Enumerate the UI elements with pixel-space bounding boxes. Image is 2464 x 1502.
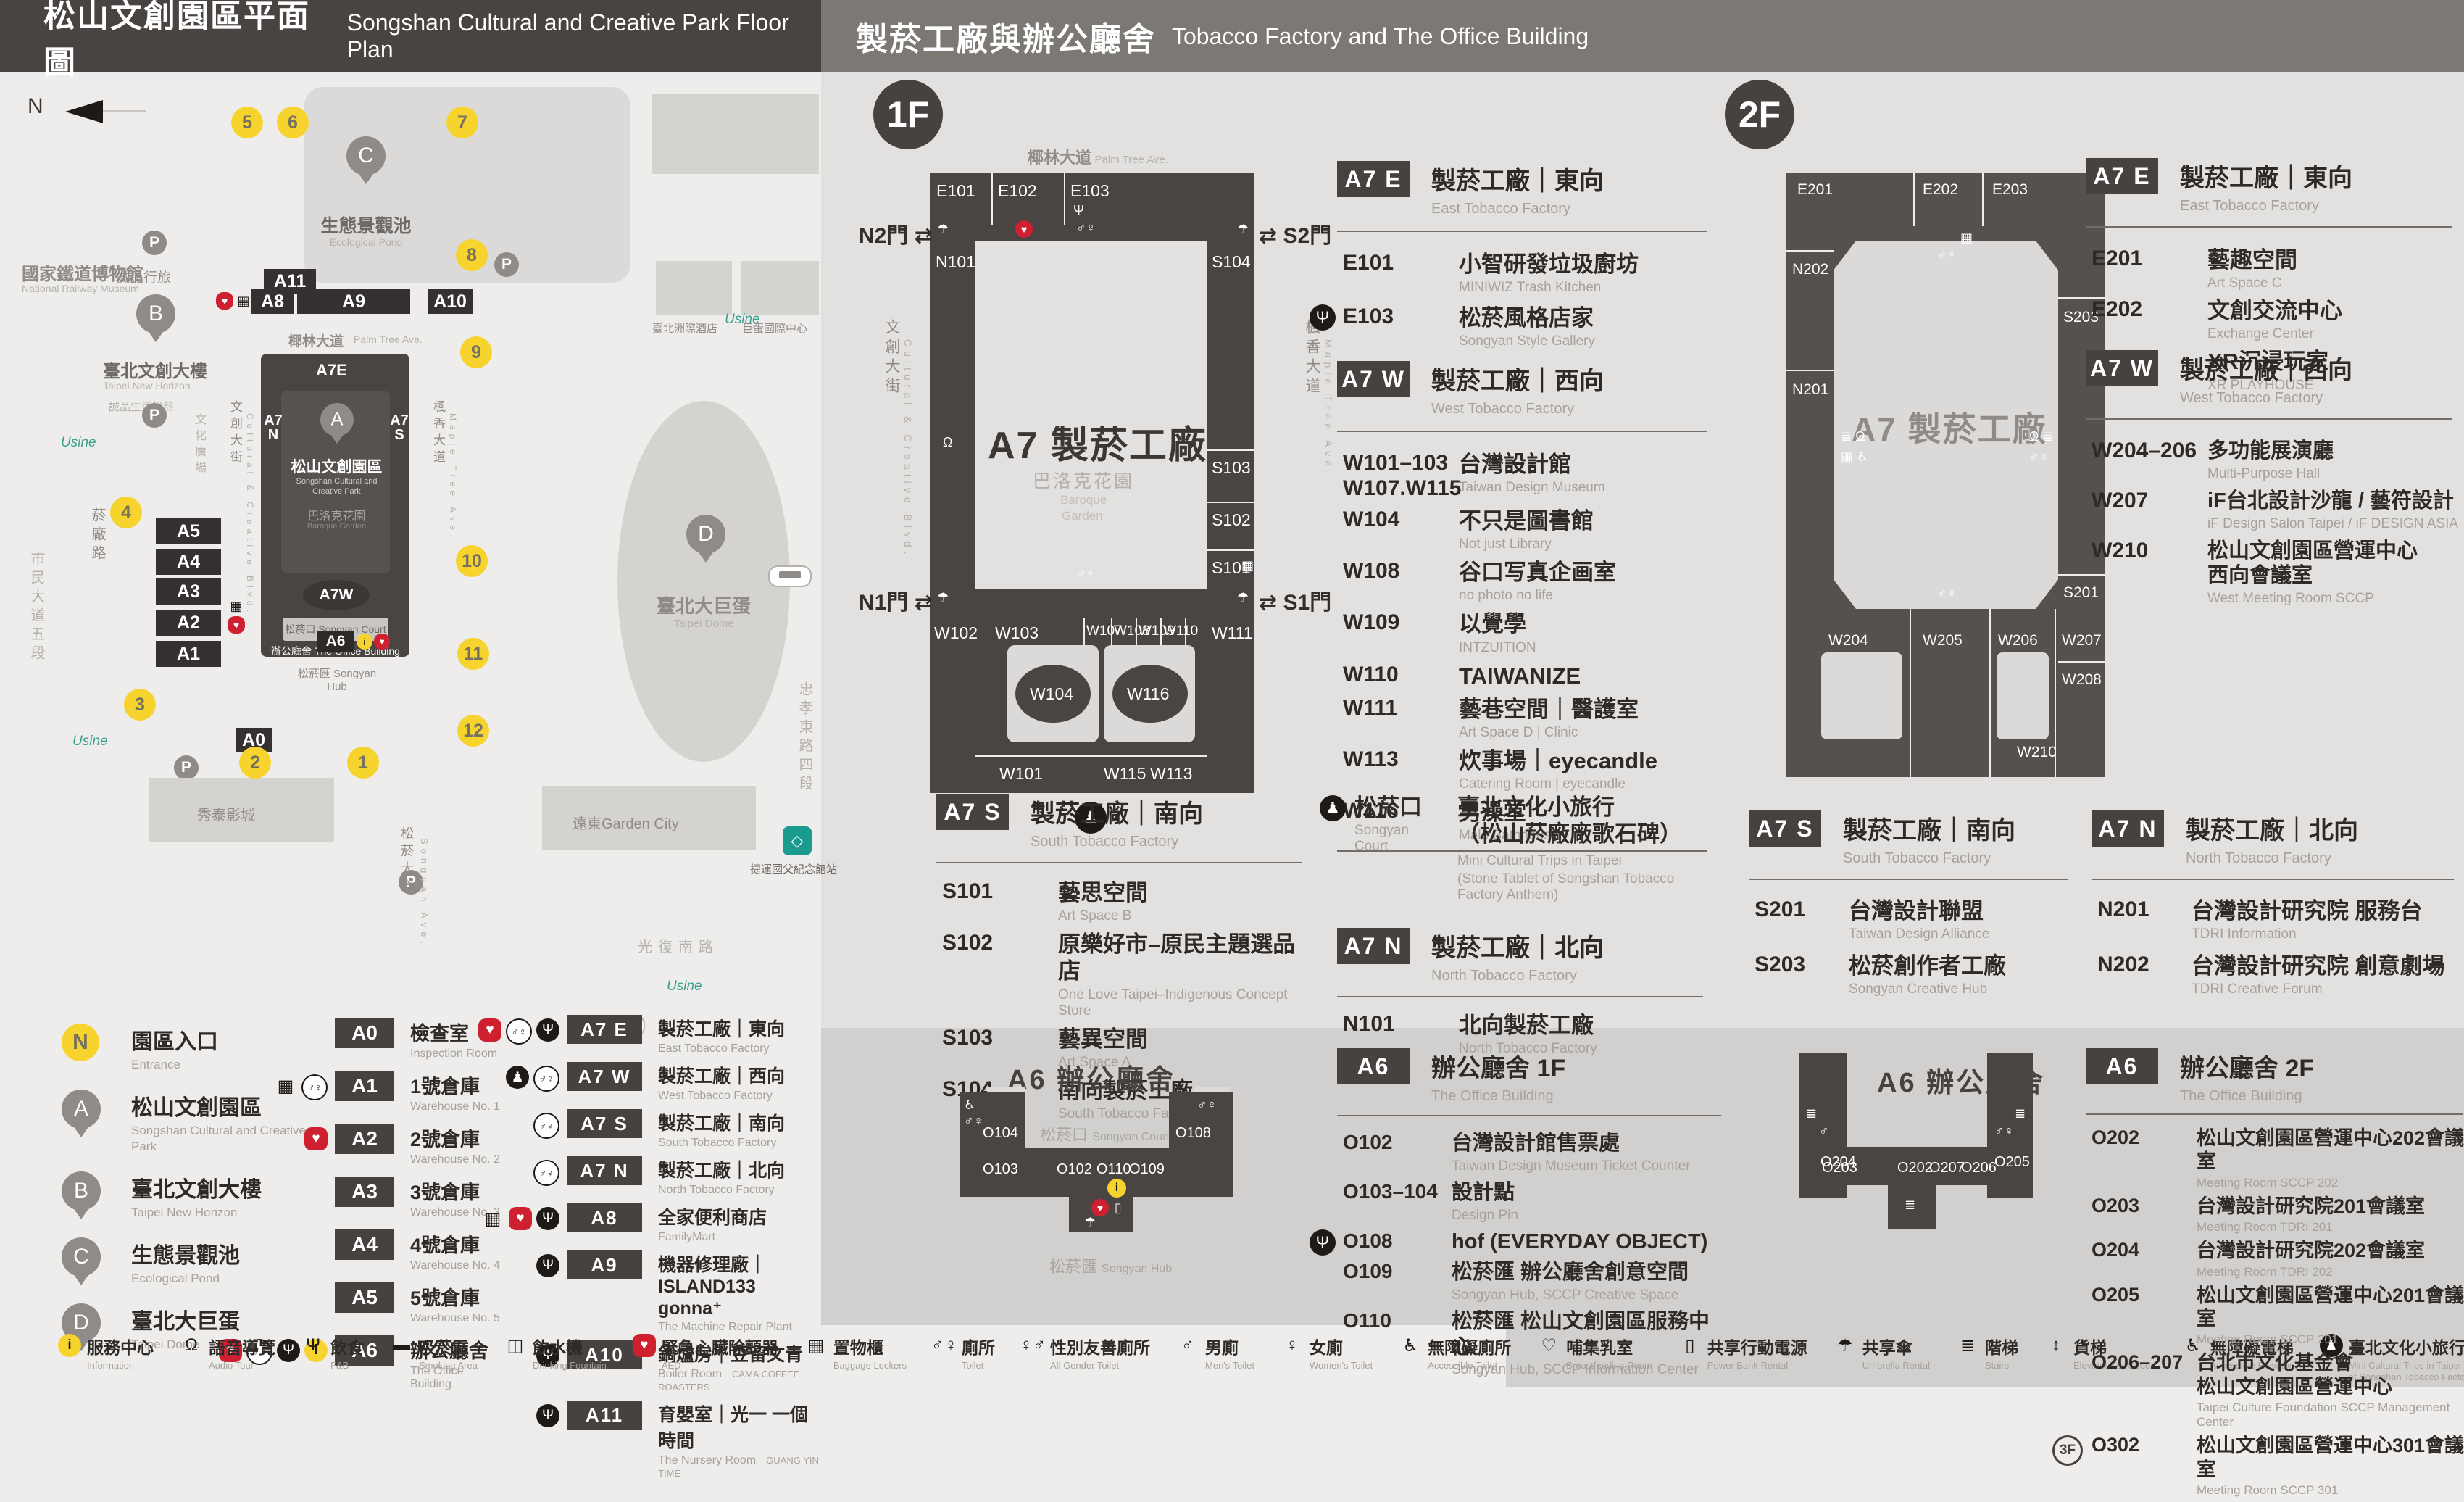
floor2-a7w-section: A7 W 製菸工廠｜西向 West Tobacco Factory W204–2… <box>2086 350 2463 613</box>
room-w204: W204 <box>1828 632 1868 650</box>
ic-blk-icon: Ψ <box>536 1207 559 1230</box>
a7s-label: A7S <box>390 413 409 443</box>
marker-icon: C <box>62 1237 112 1277</box>
block-a5: A5 <box>156 518 221 544</box>
room-w103: W103 <box>995 623 1039 643</box>
pond-label-en: Ecological Pond <box>301 236 431 248</box>
room-w101: W101 <box>999 764 1043 784</box>
facility-icon: ♂♀ <box>933 1334 956 1357</box>
dome-pin: D <box>686 515 725 554</box>
block-a3: A3 <box>156 578 221 605</box>
hub-label: 松菸匯 Songyan Hub <box>290 665 384 693</box>
page-title-en: Songshan Cultural and Creative Park Floo… <box>347 9 821 63</box>
lockers-icon: ▦ <box>1960 231 1973 246</box>
aed-icon: ♥ <box>1015 220 1033 238</box>
marker-icon: N <box>62 1024 112 1061</box>
legend-code: A7 W <box>567 1062 642 1091</box>
yanchang-rd-label: 菸廠路 <box>87 507 108 564</box>
accessible-icon: ♿ <box>964 1098 975 1113</box>
cultural-blvd-label: 文創大街 <box>226 400 244 467</box>
facility-icon: Ω <box>180 1334 203 1357</box>
aed-icon: ♥ <box>1091 1199 1109 1216</box>
zhongxiao-rd-label: 忠孝東路四段 <box>794 681 815 794</box>
marker-b-icon: B <box>62 1171 101 1211</box>
facility-icon: ≣ <box>1956 1334 1979 1357</box>
a6-map-title: A6 辦公廳舍 <box>1007 1057 1175 1097</box>
legend-row: ♥♂♀Ψ A7 E 製菸工廠｜東向 East Tobacco Factory <box>478 1015 819 1055</box>
dome-center-block <box>741 261 819 315</box>
room-o202: O202 <box>1897 1160 1933 1177</box>
cultural-blvd: 文創大街 <box>881 319 902 397</box>
toilet-icon: ♂♀ <box>1937 248 1957 263</box>
pond-label: 生態景觀池 <box>301 212 431 238</box>
new-horizon-pin: B <box>136 294 175 333</box>
section-code: A7 N <box>1337 928 1410 964</box>
new-horizon-label-en: Taipei New Horizon <box>103 380 191 391</box>
room-o207: O207 <box>1929 1160 1965 1177</box>
marker-icon: B <box>62 1171 112 1211</box>
legend-code: A7 N <box>567 1156 642 1185</box>
marker-icon: A <box>62 1090 112 1129</box>
parking-icon: P <box>494 252 519 277</box>
legend-row: ♟♂♀ A7 W 製菸工廠｜西向 West Tobacco Factory <box>478 1062 819 1103</box>
room-s104: S104 <box>1212 252 1251 272</box>
legend-icons: ♂♀ <box>478 1156 559 1186</box>
entrance-4: 4 <box>110 497 142 528</box>
facility-icon: ☂ <box>1834 1334 1857 1357</box>
ic-plain-icon: ▦ <box>481 1207 504 1230</box>
showtime-label: 秀泰影城 <box>197 803 255 824</box>
block-a8: A8 <box>251 289 294 314</box>
dome-label-en: Taipei Dome <box>631 618 776 630</box>
intercontinental-label: 臺北洲際酒店 <box>652 320 717 336</box>
facility-item: ♂♀ 廁所 Toilet <box>933 1334 995 1372</box>
audio-icon: Ω <box>943 435 952 450</box>
section-code: A6 <box>2086 1048 2158 1084</box>
room-n201: N201 <box>1792 381 1828 399</box>
facility-icon: ◫ <box>504 1334 527 1357</box>
pin-b: B <box>136 294 175 333</box>
palm-ave-label-en: Palm Tree Ave. <box>354 333 423 345</box>
pond-pin: C <box>346 136 386 175</box>
legend-code: A5 <box>335 1282 394 1313</box>
room-w205: W205 <box>1923 632 1963 650</box>
legend-icons: ♟♂♀ <box>478 1062 559 1092</box>
facility-icon: ↕ <box>2044 1334 2068 1357</box>
cultural-plaza-label: 文化廣場 <box>190 413 207 477</box>
section-title-zh: 製菸工廠與辦公廳舍 <box>856 13 1156 59</box>
legend-row: Ψ A9 機器修理廠｜ISLAND133 gonna⁺ The Machine … <box>478 1250 819 1334</box>
room-s102: S102 <box>1212 510 1251 530</box>
room-o103: O103 <box>983 1161 1018 1178</box>
header-right: 製菸工廠與辦公廳舍 Tobacco Factory and The Office… <box>821 0 2464 72</box>
floor1-a7w-section: A7 W 製菸工廠｜西向 West Tobacco Factory W101–1… <box>1337 361 1714 852</box>
garden-label: 巴洛克花園 <box>1033 467 1134 493</box>
room-e201: E201 <box>1797 181 1833 199</box>
mrt-label: 捷運國父紀念館站 <box>725 861 862 876</box>
room-n101: N101 <box>936 252 975 272</box>
entrance-10: 10 <box>456 545 488 577</box>
facility-icon: i <box>58 1334 81 1357</box>
floor2-a7s-section: A7 S 製菸工廠｜南向 South Tobacco Factory S201 … <box>1749 810 2075 1008</box>
songyan-ave-label: 松菸大道 <box>397 826 416 896</box>
floor1-map: 椰林大道 Palm Tree Ave. E101 E102 E103 Ψ N2門… <box>859 145 1366 841</box>
room-w206: W206 <box>1998 632 2038 650</box>
legend-icons <box>246 1018 328 1021</box>
room-o205: O205 <box>1994 1154 2030 1171</box>
facility-item: ▦ 置物櫃 Baggage Lockers <box>804 1334 907 1372</box>
block-a2: A2 <box>156 610 221 636</box>
locker-icon: ▦ <box>228 597 245 615</box>
facility-legend: i 服務中心 Information Ω 語音導覽 Audio Tour Ψ 飲… <box>58 1334 1500 1382</box>
entrance-6: 6 <box>277 107 309 138</box>
legend-code: A7 E <box>567 1015 642 1044</box>
toilet-icon: ♂♀ <box>2029 449 2049 465</box>
facility-icon: ♀♂ <box>1021 1334 1044 1357</box>
hotel-block <box>656 261 732 315</box>
ic-wht-icon: ♂♀ <box>301 1074 328 1100</box>
ic-blk-icon: Ψ <box>536 1018 559 1042</box>
goods-elevator-icon: ▦ <box>1241 558 1254 573</box>
eslite-hotel-label: 誠品行旅 <box>116 267 171 286</box>
floor2-a6-section: A6 辦公廳舍 2F The Office Building O202 松山文創… <box>2086 1048 2464 1502</box>
legend-row: ▦♂♀ A1 1號倉庫 Warehouse No. 1 <box>246 1071 507 1113</box>
dome-label: 臺北大巨蛋 <box>631 592 776 618</box>
toilet-icon: ♂♀ <box>1076 220 1096 236</box>
marker-n-icon: N <box>62 1024 99 1061</box>
room-w102: W102 <box>934 623 978 643</box>
pin-d: D <box>686 515 725 554</box>
pin-a: A <box>320 403 354 436</box>
songyan-ave-label-en: Songyan Ave. <box>419 838 430 948</box>
section-code: A7 S <box>1749 810 1821 847</box>
header-left: 松山文創園區平面圖 Songshan Cultural and Creative… <box>0 0 821 72</box>
room-s103: S103 <box>1212 458 1251 478</box>
entrance-1: 1 <box>347 747 379 779</box>
facility-icon: ♀ <box>1281 1334 1304 1357</box>
floor1-a7e-section: A7 E 製菸工廠｜東向 East Tobacco Factory E101 小… <box>1337 161 1714 358</box>
legend-row: A3 3號倉庫 Warehouse No. 3 <box>246 1177 507 1219</box>
toilet-icon: ♂♀ <box>1076 567 1096 582</box>
room-o109: O109 <box>1129 1161 1165 1178</box>
entrance-11: 11 <box>457 638 489 670</box>
section-code: A7 N <box>2092 810 2164 847</box>
garden-label-en1: Baroque <box>1060 493 1107 507</box>
room-w111: W111 <box>1212 623 1253 643</box>
legend-row: ♂♀ A7 N 製菸工廠｜北向 North Tobacco Factory <box>478 1156 819 1197</box>
parking-icon: P <box>142 403 167 428</box>
legend-row: A4 4號倉庫 Warehouse No. 4 <box>246 1229 507 1272</box>
toilet-icon: ♂♀ <box>1994 1124 2014 1139</box>
entrance-12: 12 <box>457 715 489 747</box>
room-o104: O104 <box>983 1125 1018 1142</box>
facility-item: ☂ 共享傘 Umbrella Rental <box>1834 1334 1930 1372</box>
facility-icon: ♂ <box>1176 1334 1199 1357</box>
pin-c: C <box>346 136 386 175</box>
room-o102: O102 <box>1057 1161 1092 1178</box>
facility-item: ≣ 階梯 Stairs <box>1956 1334 2018 1372</box>
legend-icons: ♥ <box>246 1124 328 1150</box>
a7e-label: A7E <box>316 361 347 380</box>
block-a6: A6 <box>317 631 354 652</box>
garden-city-label: 遠東Garden City <box>573 812 679 833</box>
legend-code: A9 <box>567 1250 642 1279</box>
section-code: A7 S <box>936 794 1009 830</box>
a7w-label: A7W <box>320 586 354 604</box>
statue-icon: ♟ <box>1320 795 1346 821</box>
room-w104: W104 <box>1030 684 1073 704</box>
room-o108: O108 <box>1175 1125 1211 1142</box>
room-e103: E103 <box>1070 181 1110 201</box>
gate-s2: ⇄ S2門 <box>1259 217 1331 249</box>
facility-item: ▬ 吸菸區 Smoking Area <box>390 1334 478 1372</box>
legend-icons: Ψ <box>478 1401 559 1427</box>
sccp-pin: A <box>320 403 354 436</box>
usine-mark: Usine <box>667 979 702 995</box>
locker-icon: ▦ <box>235 292 252 310</box>
hub-label: 松菸匯 Songyan Hub <box>1049 1254 1172 1277</box>
floor1-a6-map: A6 辦公廳舍 松菸口 Songyan Court O104 O103 O102… <box>942 1044 1312 1327</box>
usine-mark: Usine <box>72 734 108 750</box>
info-icon: i <box>357 634 372 650</box>
compass-icon <box>54 100 103 123</box>
legend-row: ▦♥Ψ A8 全家便利商店 FamilyMart <box>478 1203 819 1244</box>
entrance-9: 9 <box>460 336 492 368</box>
umbrella-icon: ☂ <box>1084 1215 1096 1230</box>
legend-row: ♂♀ A7 S 製菸工廠｜南向 South Tobacco Factory <box>478 1109 819 1150</box>
mrt-icon: ◇ <box>783 826 812 855</box>
entrance-7: 7 <box>446 107 478 138</box>
a7-big-label: A7 製菸工廠 <box>988 415 1207 469</box>
block-a1: A1 <box>156 641 221 667</box>
section-title-en: Tobacco Factory and The Office Building <box>1172 23 1589 50</box>
floor1-a7n-section: A7 N 製菸工廠｜北向 North Tobacco Factory N101 … <box>1337 928 1714 1066</box>
umbrella-icon: ☂ <box>937 590 949 605</box>
stairs-icon: ≣ <box>1806 1106 1817 1121</box>
building-legend-b: ♥♂♀Ψ A7 E 製菸工廠｜東向 East Tobacco Factory ♟… <box>478 1015 819 1487</box>
room-e202: E202 <box>1923 181 1958 199</box>
toilet-icon: ♂♀ <box>964 1113 983 1129</box>
facility-icon: ▬ <box>390 1334 413 1357</box>
ic-blk-icon: Ψ <box>536 1254 559 1277</box>
facility-item: ♂ 男廁 Men's Toilet <box>1176 1334 1254 1372</box>
room-w115: W115 <box>1104 764 1146 784</box>
block-a9: A9 <box>297 289 410 314</box>
gate-n1: N1門 ⇄ <box>859 584 933 616</box>
ic-wht-icon: ♂♀ <box>533 1160 559 1186</box>
facility-icon: Ψ <box>301 1334 325 1357</box>
legend-icons: ♂♀ <box>478 1109 559 1139</box>
room-w210: W210 <box>2017 744 2057 761</box>
floor1-a6-section: A6 辦公廳舍 1F The Office Building O102 台灣設計… <box>1337 1048 1728 1384</box>
section-code: A6 <box>1337 1048 1410 1084</box>
room-o206: O206 <box>1961 1160 1997 1177</box>
facility-icon: ▦ <box>804 1334 828 1357</box>
facility-icon: ♥ <box>633 1334 656 1357</box>
legend-code: A3 <box>335 1177 394 1207</box>
umbrella-icon: ☂ <box>1237 590 1249 605</box>
legend-code: A4 <box>335 1229 394 1260</box>
palm-ave: 椰林大道 Palm Tree Ave. <box>982 145 1214 168</box>
legend-code: A1 <box>335 1071 394 1101</box>
legend-code: A0 <box>335 1018 394 1048</box>
ic-wht-icon: ♂♀ <box>533 1066 559 1092</box>
room-e203: E203 <box>1992 181 2028 199</box>
compass-tail <box>103 110 146 112</box>
block-a4: A4 <box>156 549 221 575</box>
floor2-a7n-section: A7 N 製菸工廠｜北向 North Tobacco Factory N201 … <box>2092 810 2461 1008</box>
section-code: A7 W <box>2086 350 2158 386</box>
room-o110: O110 <box>1096 1161 1131 1178</box>
ic-wht-icon: ♂♀ <box>533 1113 559 1139</box>
sccp-label-en2: Creative Park <box>284 487 389 496</box>
parking-icon: P <box>142 231 167 255</box>
floor-badge-2f: 2F <box>1725 80 1794 149</box>
stairs-icon: ≣ <box>1905 1198 1915 1213</box>
entrance-2: 2 <box>239 747 271 779</box>
section-code: A7 W <box>1337 361 1410 397</box>
legend-icons: ♥♂♀Ψ <box>478 1015 559 1045</box>
ic-plain-icon: ▦ <box>274 1074 297 1098</box>
legend-icons <box>246 1282 328 1286</box>
section-code: A7 E <box>2086 158 2158 194</box>
a7n-label: A7N <box>264 413 283 443</box>
usine-mark: Usine <box>61 435 96 451</box>
aed-icon: ♥ <box>216 292 233 310</box>
room-w207: W207 <box>2062 632 2102 650</box>
cultural-blvd-label-en: Cultural & Creative Blvd. <box>245 413 255 617</box>
baroque-label-en: Baroque Garden <box>284 522 389 531</box>
marker-a-icon: A <box>62 1090 101 1129</box>
facility-item: Ψ 飲食 F&B <box>301 1334 364 1372</box>
aed-icon: ♥ <box>374 634 390 650</box>
legend-icons <box>246 1229 328 1233</box>
stairs-icon: ≣ <box>2015 1106 2026 1121</box>
stairs-icon: ≣ Ω <box>1841 429 1865 444</box>
civic-blvd-label: 市民大道五段 <box>26 551 47 664</box>
info-icon: i <box>1107 1179 1126 1198</box>
court-label: 松菸口 Songyan Court <box>1040 1122 1170 1145</box>
bus-stop-icon <box>768 565 812 587</box>
room-w116: W116 <box>1127 684 1169 704</box>
facility-item: ♀♂ 性別友善廁所 All Gender Toilet <box>1021 1334 1150 1372</box>
usine-mark: Usine <box>725 312 760 328</box>
room-w110: W110 <box>1163 623 1198 639</box>
maple-ave-label-en: Maple Tree Ave. <box>448 413 458 542</box>
room-w208: W208 <box>2062 671 2102 689</box>
accessible-icon: ▦ ♿ <box>1841 449 1868 465</box>
entrance-8: 8 <box>456 239 488 271</box>
facility-item: ◫ 飲水機 Drinking Fountain <box>504 1334 607 1372</box>
taipei-dome-shape <box>617 401 790 762</box>
legend-icons: ▦♂♀ <box>246 1071 328 1100</box>
legend-row: ♥ A2 2號倉庫 Warehouse No. 2 <box>246 1124 507 1166</box>
ic-aed-icon: ♥ <box>509 1207 532 1230</box>
ic-wht-icon: ♂♀ <box>506 1018 532 1045</box>
powerbank-icon: ▯ <box>1115 1200 1122 1216</box>
ic-blk-icon: ♟ <box>506 1066 529 1089</box>
legend-icons: ▦♥Ψ <box>478 1203 559 1230</box>
compass-label: N <box>28 94 43 119</box>
facility-item: Ω 語音導覽 Audio Tour <box>180 1334 275 1372</box>
legend-row: Ψ A11 育嬰室｜光一 一個時間 The Nursery RoomGUANG … <box>478 1401 819 1480</box>
garden-label-en2: Garden <box>1062 509 1103 523</box>
room-o203-label: O203 <box>1822 1160 1857 1177</box>
new-horizon-label: 臺北文創大樓 <box>103 357 207 382</box>
umbrella-icon: ☂ <box>937 222 949 237</box>
maple-ave-en: Maple Tree Ave. <box>1323 339 1334 478</box>
aed-icon: ♥ <box>228 616 245 634</box>
entrance-3: 3 <box>124 689 156 721</box>
floor1-court-note: ♟ 松菸口 Songyan Court 臺北文化小旅行 （松山菸廠廠歌石碑） M… <box>1337 794 1714 903</box>
gate-n2: N2門 ⇄ <box>859 217 933 249</box>
page-title-zh: 松山文創園區平面圖 <box>43 0 331 83</box>
parking-icon: P <box>174 755 199 780</box>
legend-icons: Ψ <box>478 1250 559 1277</box>
section-code: A7 E <box>1337 161 1410 197</box>
gate-s1: ⇄ S1門 <box>1259 584 1331 616</box>
a7w-oval: A7W <box>303 580 370 610</box>
legend-code: A8 <box>567 1203 642 1232</box>
toilet-icon: ♂♀ <box>1937 586 1957 601</box>
maple-ave: 楓香大道 <box>1301 319 1323 397</box>
fnb-icon: Ψ <box>1073 203 1084 218</box>
facility-item: ♥ 緊急心臟除顫器 AED <box>633 1334 778 1372</box>
room-n202: N202 <box>1792 261 1828 278</box>
legend-code: A7 S <box>567 1109 642 1138</box>
toilet-icon: ♂♀ <box>1197 1098 1217 1113</box>
room-w113: W113 <box>1150 764 1192 784</box>
city-block-1 <box>652 94 819 174</box>
palm-ave-label: 椰林大道 <box>288 331 344 350</box>
umbrella-icon: ☂ <box>1237 222 1249 237</box>
legend-icons <box>246 1177 328 1180</box>
block-a10: A10 <box>428 289 473 314</box>
marker-c-icon: C <box>62 1237 101 1277</box>
baroque-label: 巴洛克花園 <box>284 506 389 523</box>
ic-aed-icon: ♥ <box>304 1127 328 1150</box>
legend-code: A2 <box>335 1124 394 1154</box>
ic-blk-icon: Ψ <box>536 1404 559 1427</box>
room-e101: E101 <box>936 181 975 201</box>
legend-row: A0 檢查室 Inspection Room <box>246 1018 507 1061</box>
cultural-blvd-en: Cultural & Creative Blvd. <box>902 339 914 559</box>
a7-big-label: A7 製菸工廠 <box>1852 403 2047 451</box>
floor-badge-1f: 1F <box>873 80 943 149</box>
legend-row: A5 5號倉庫 Warehouse No. 5 <box>246 1282 507 1325</box>
stairs-icon: Ω ≣ <box>2029 429 2054 444</box>
room-e102: E102 <box>998 181 1037 201</box>
sccp-label-en1: Songshan Cultural and <box>284 477 389 486</box>
ic-aed-icon: ♥ <box>478 1018 501 1042</box>
facility-item: i 服務中心 Information <box>58 1334 154 1372</box>
sccp-label: 松山文創園區 <box>284 455 389 477</box>
maple-ave-label: 楓香大道 <box>429 400 447 467</box>
legend-code: A11 <box>567 1401 642 1430</box>
guangfu-rd-label: 光復南路 <box>638 935 719 956</box>
entrance-5: 5 <box>231 107 263 138</box>
toilet-icon: ♂ <box>1819 1124 1829 1139</box>
